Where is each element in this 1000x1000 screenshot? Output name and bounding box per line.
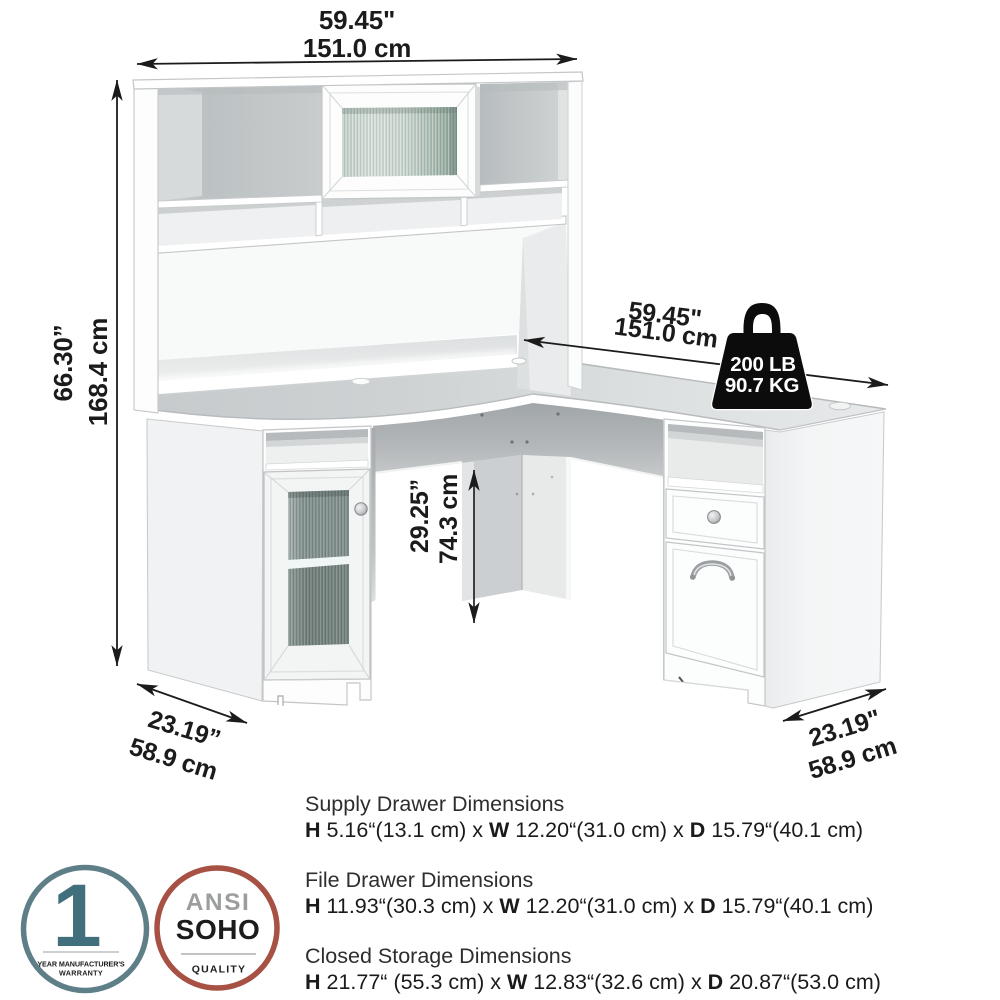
svg-text:200 LB: 200 LB [730,353,795,376]
svg-text:90.7 KG: 90.7 KG [725,374,799,397]
svg-text:1: 1 [52,865,102,965]
svg-text:29.25”: 29.25” [406,479,434,553]
svg-text:H 21.77“ (55.3 cm) x W 12.83“: H 21.77“ (55.3 cm) x W 12.83“(32.6 cm) x… [305,970,881,994]
svg-text:Supply Drawer Dimensions: Supply Drawer Dimensions [305,792,564,816]
svg-text:Closed Storage Dimensions: Closed Storage Dimensions [305,944,572,968]
svg-text:151.0 cm: 151.0 cm [613,312,720,353]
svg-text:59.45": 59.45" [319,5,395,35]
svg-text:H 5.16“(13.1 cm) x W 12.20“(3: H 5.16“(13.1 cm) x W 12.20“(31.0 cm) x D… [305,818,863,842]
svg-text:YEAR MANUFACTURER'S: YEAR MANUFACTURER'S [37,960,125,969]
svg-text:ANSI: ANSI [186,889,251,916]
svg-text:151.0 cm: 151.0 cm [303,33,411,63]
svg-text:74.3 cm: 74.3 cm [435,474,463,564]
svg-text:H 11.93“(30.3 cm) x W 12.20“(: H 11.93“(30.3 cm) x W 12.20“(31.0 cm) x … [305,894,873,918]
svg-text:File Drawer Dimensions: File Drawer Dimensions [305,868,533,892]
svg-text:QUALITY: QUALITY [192,964,246,976]
svg-text:SOHO: SOHO [176,914,260,945]
svg-text:WARRANTY: WARRANTY [59,969,103,978]
svg-text:168.4 cm: 168.4 cm [83,318,113,426]
svg-text:66.30”: 66.30” [48,325,78,402]
